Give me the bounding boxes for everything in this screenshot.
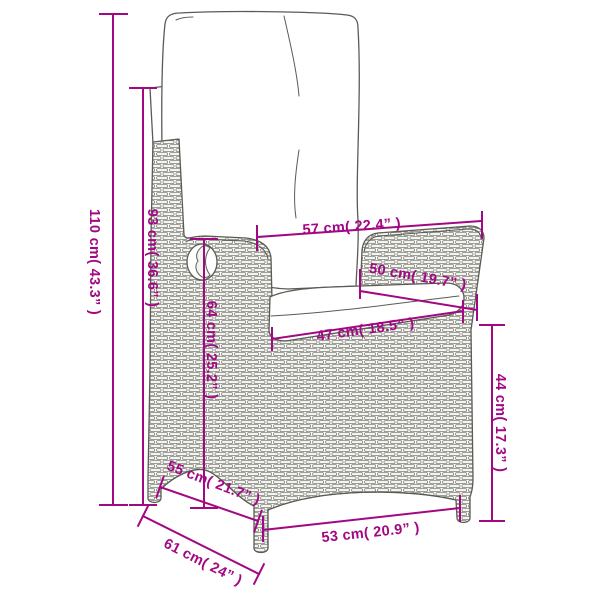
dim-label-base-depth: 61 cm( 24” ) <box>161 536 245 589</box>
dimension-diagram: 110 cm( 43.3” ) 93 cm( 36.6” ) 64 cm( 25… <box>0 0 600 600</box>
dim-label-inner-back-height: 64 cm( 25.2” ) <box>203 301 219 400</box>
dim-label-front-width: 53 cm( 20.9” ) <box>321 520 421 546</box>
dim-line-total-height <box>100 14 127 505</box>
dim-label-total-height: 110 cm( 43.3” ) <box>86 209 102 315</box>
dim-label-backrest-height: 93 cm( 36.6” ) <box>144 209 160 308</box>
chair-dimension-drawing: 110 cm( 43.3” ) 93 cm( 36.6” ) 64 cm( 25… <box>0 0 600 600</box>
dim-label-seat-height: 44 cm( 17.3” ) <box>492 374 508 473</box>
dim-line-base-depth <box>138 506 264 584</box>
